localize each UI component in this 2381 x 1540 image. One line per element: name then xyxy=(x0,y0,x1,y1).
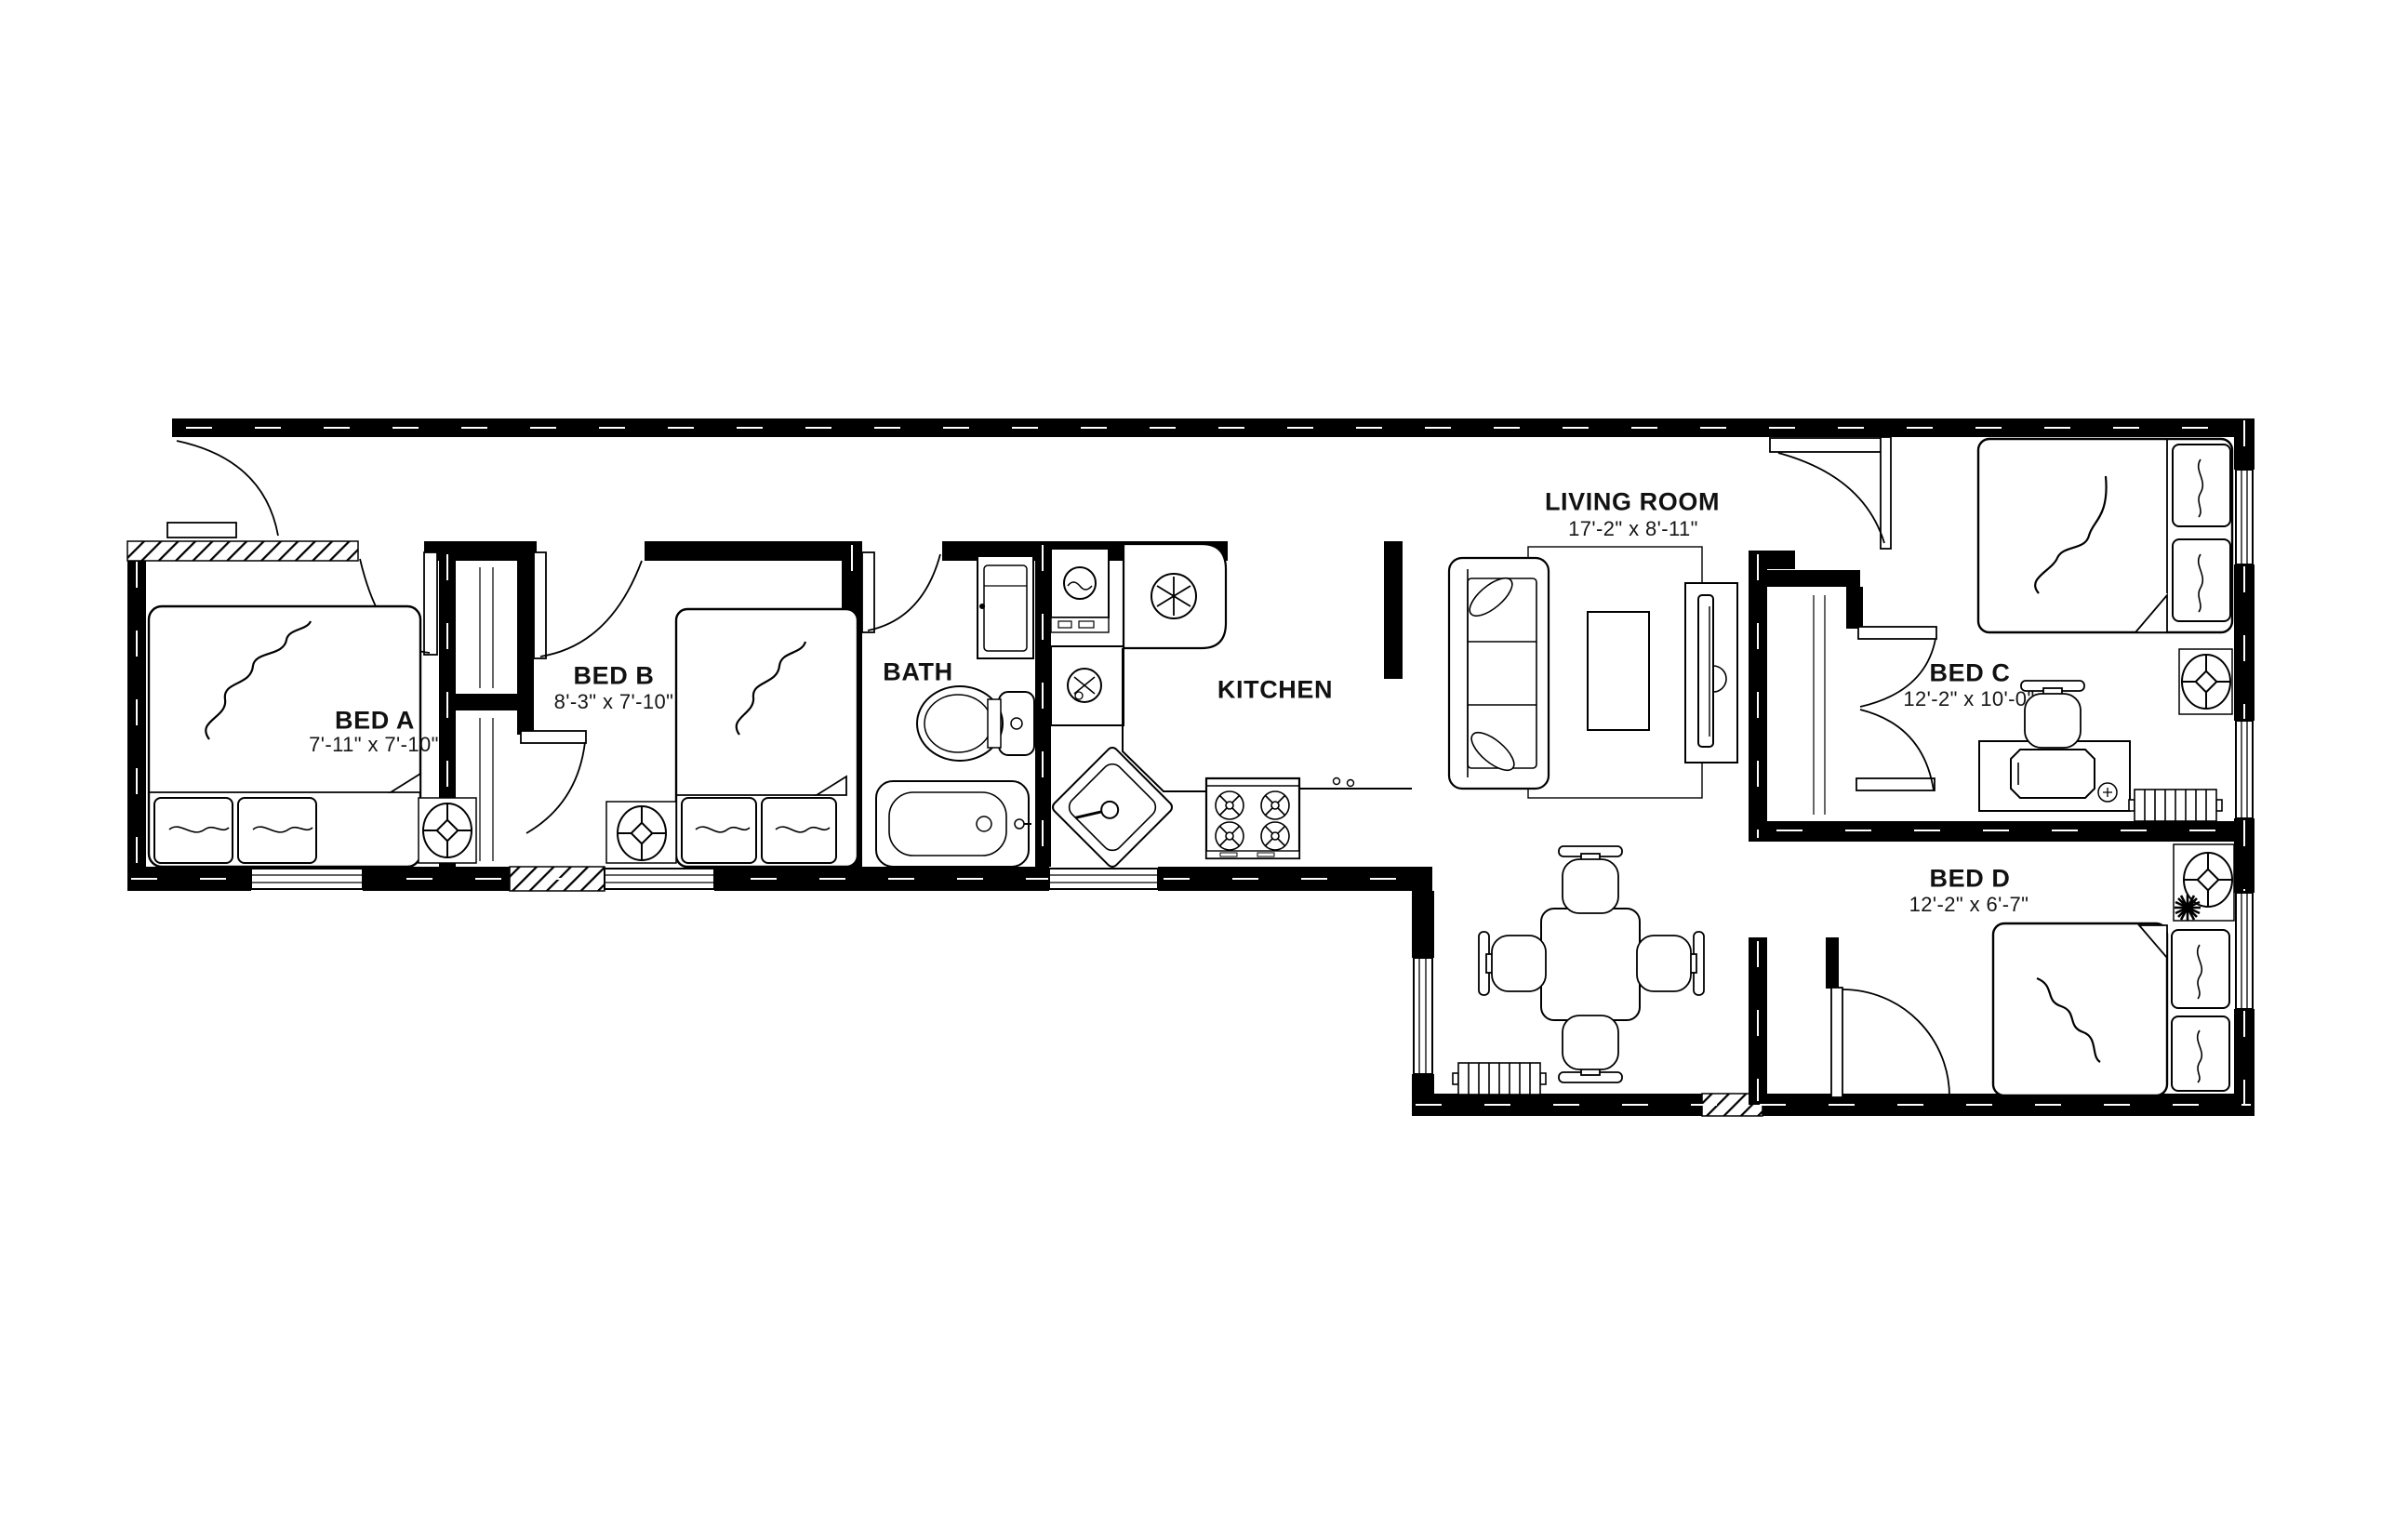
living-coffee-table xyxy=(1588,612,1649,730)
kitchen-disposal-cabinet xyxy=(1051,646,1124,725)
bed-d-ceiling-fan-icon xyxy=(2184,853,2232,907)
wall-bedc-bottom xyxy=(1767,821,2255,842)
kitchen-sink xyxy=(1051,746,1175,870)
room-label-living-room: LIVING ROOM xyxy=(1545,488,1720,517)
kitchen-washer xyxy=(1051,549,1109,632)
room-dim-bed-d: 12'-2" x 6'-7" xyxy=(1909,893,2029,917)
bed-b-ceiling-fan-icon xyxy=(618,806,666,860)
windows xyxy=(251,470,2253,1074)
room-label-kitchen: KITCHEN xyxy=(1217,676,1333,705)
wall-bedc-closet-top xyxy=(1767,570,1860,587)
floor-plan-canvas: BED A 7'-11" x 7'-10" BED B 8'-3" x 7'-1… xyxy=(0,0,2381,1540)
wall-dining-left-upper xyxy=(1412,891,1434,958)
tv xyxy=(1698,595,1713,747)
window-kitchen xyxy=(1049,869,1158,889)
kitchen-fridge xyxy=(1124,544,1226,648)
dining-table xyxy=(1541,909,1640,1020)
bed-a-pillow xyxy=(238,798,316,863)
window-bed-a xyxy=(251,869,363,889)
floor-plan-drawing xyxy=(0,0,2381,1540)
bed-b-closet-door xyxy=(521,731,586,833)
wall-bed-a-top-hatched xyxy=(127,541,358,561)
dining-chair xyxy=(1559,1016,1622,1082)
living-tv-console xyxy=(1685,583,1737,763)
wall-closet-stub xyxy=(456,694,517,710)
bed-c-pillow xyxy=(2173,539,2230,621)
kitchen-fixtures xyxy=(1051,544,1412,869)
bed-d-plant xyxy=(2175,895,2201,921)
room-label-bed-c: BED C xyxy=(1929,659,2010,688)
bed-a-pillow xyxy=(154,798,233,863)
wall-living-stub xyxy=(1384,541,1403,679)
room-label-bed-a: BED A xyxy=(335,707,415,736)
bed-d-bed xyxy=(1993,923,2167,1095)
bed-d-door xyxy=(1831,988,1949,1097)
bed-c-ceiling-fan-icon xyxy=(2182,655,2230,709)
bath-fixtures xyxy=(876,556,1034,867)
dining-radiator xyxy=(1453,1063,1546,1095)
entry-door xyxy=(167,441,278,538)
room-label-bath: BATH xyxy=(883,658,952,687)
bed-c-furniture xyxy=(1978,439,2232,811)
bath-door xyxy=(862,552,940,632)
dining-chair xyxy=(1559,846,1622,913)
room-label-bed-d: BED D xyxy=(1929,865,2010,894)
living-sofa xyxy=(1449,558,1549,789)
bed-c-door xyxy=(1770,437,1891,549)
room-dim-bed-c: 12'-2" x 10'-0" xyxy=(1903,687,2034,711)
bed-d-pillow xyxy=(2172,1016,2229,1091)
bed-a-ceiling-fan-icon xyxy=(423,803,472,857)
bed-d-furniture xyxy=(1993,844,2234,1095)
dining-chair xyxy=(1637,932,1704,995)
room-dim-living-room: 17'-2" x 8'-11" xyxy=(1568,517,1698,541)
bath-tub xyxy=(876,781,1031,867)
room-label-bed-b: BED B xyxy=(573,662,654,691)
wall-bedd-jamb xyxy=(1826,937,1839,989)
wall-bed-b-left xyxy=(517,561,534,735)
bath-vanity xyxy=(978,556,1033,658)
bath-toilet xyxy=(917,686,1034,761)
bed-b-door xyxy=(534,552,642,658)
bed-c-radiator xyxy=(2129,790,2222,821)
dining-chair xyxy=(1479,932,1546,995)
room-dim-bed-b: 8'-3" x 7'-10" xyxy=(554,690,674,714)
window-bed-c-1 xyxy=(2236,470,2253,564)
room-dim-bed-a: 7'-11" x 7'-10" xyxy=(309,733,439,757)
window-bed-b xyxy=(605,869,714,889)
window-bed-c-2 xyxy=(2236,721,2253,818)
bed-d-pillow xyxy=(2172,930,2229,1008)
wall-bed-b-top xyxy=(645,541,862,561)
window-dining xyxy=(1414,958,1432,1074)
laptop xyxy=(2011,750,2095,798)
window-bed-d xyxy=(2236,893,2253,1009)
kitchen-stove xyxy=(1206,778,1299,858)
kitchen-counter-edge xyxy=(1123,648,1412,791)
bed-c-pillow xyxy=(2173,445,2230,526)
bed-c-desk xyxy=(1979,741,2130,811)
